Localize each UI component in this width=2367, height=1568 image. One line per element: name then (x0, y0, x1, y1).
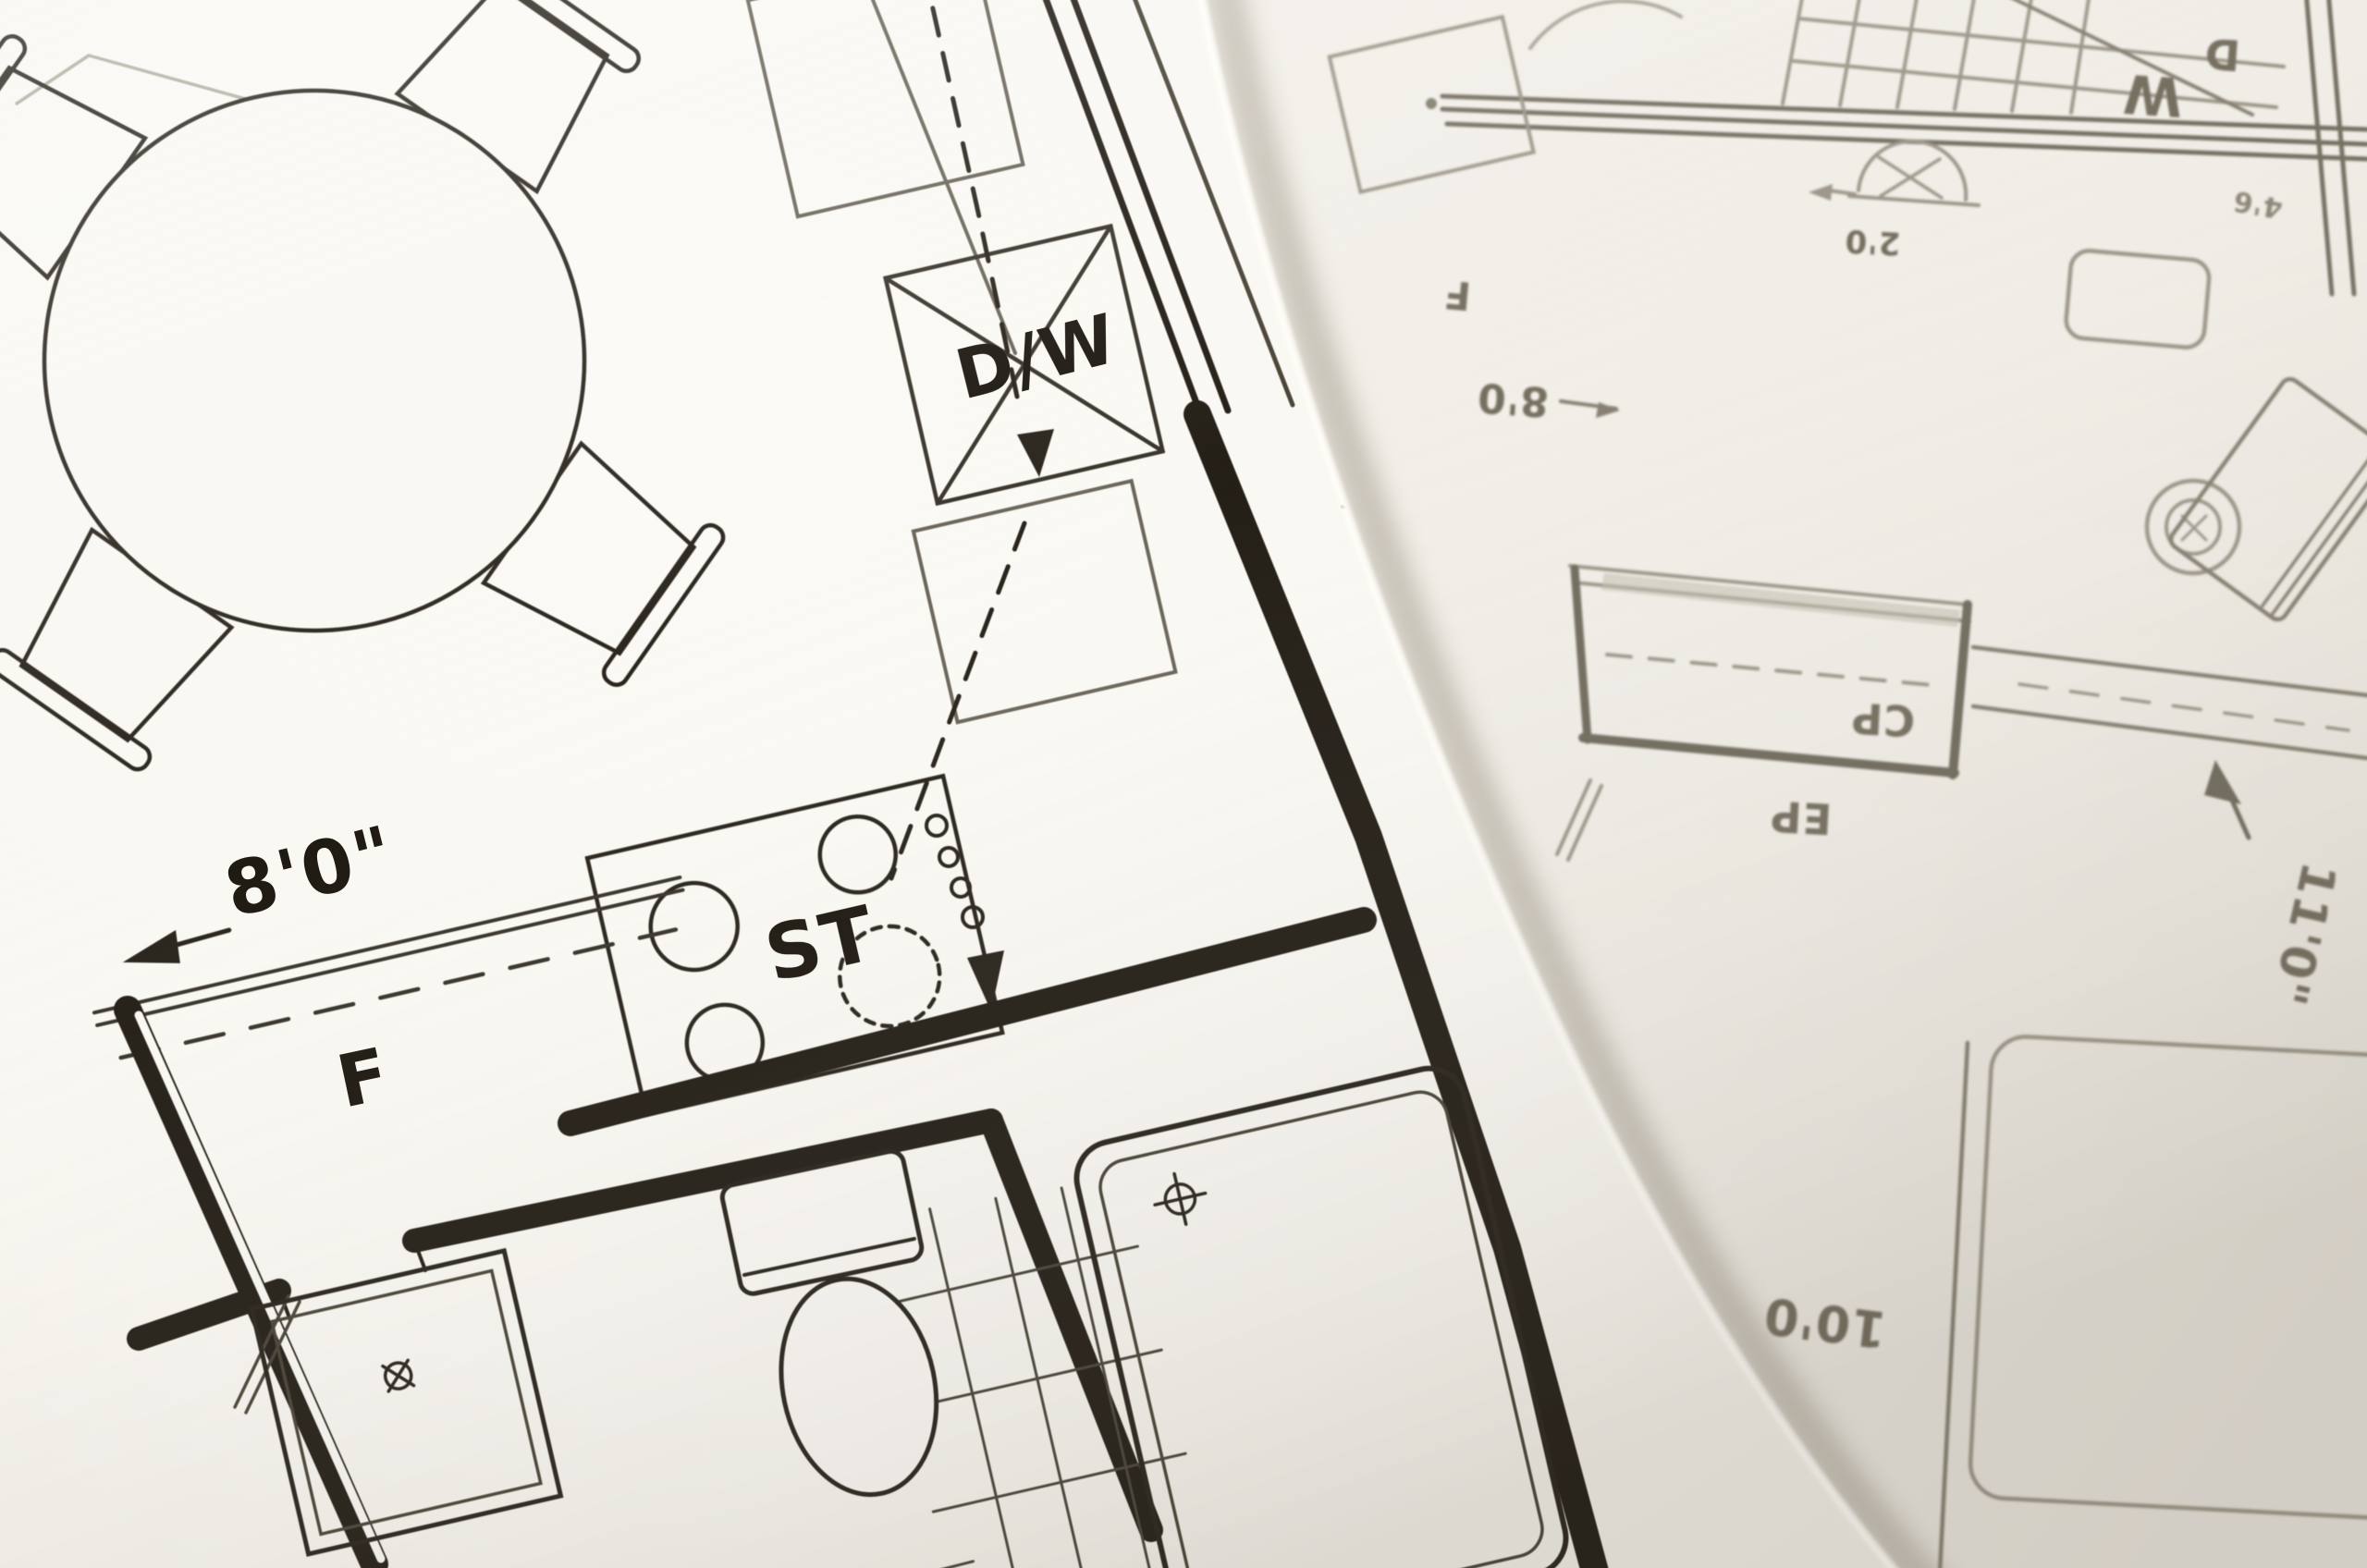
blueprint-photo: W D 2'0 4'6 CP EP 11'0" 10'0 F 8'0 (0, 0, 2367, 1568)
floor-plan-scene: W D 2'0 4'6 CP EP 11'0" 10'0 F 8'0 (0, 0, 2367, 1568)
photo-vignette (0, 0, 2367, 1568)
